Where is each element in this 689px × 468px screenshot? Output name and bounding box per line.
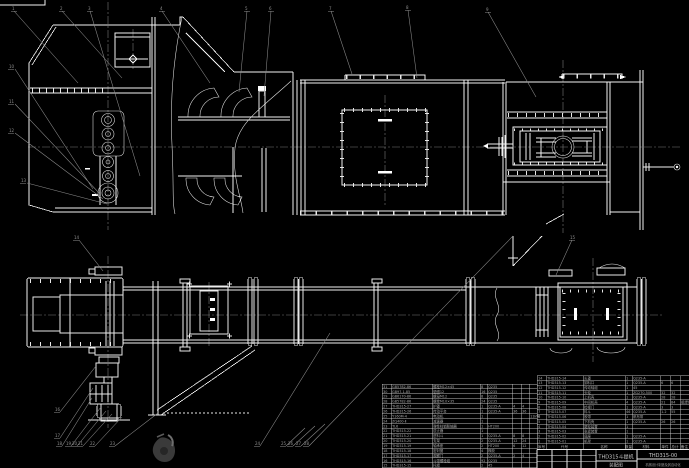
svg-text:THD315-03: THD315-03 [546,430,566,434]
svg-text:2: 2 [60,6,63,11]
svg-text:Q235: Q235 [488,385,497,389]
svg-text:1: 1 [538,439,540,443]
svg-text:4: 4 [538,425,540,429]
svg-text:THD315-13: THD315-13 [546,381,566,385]
svg-text:32: 32 [671,391,675,395]
svg-text:Q235-A: Q235-A [633,376,646,380]
svg-text:8: 8 [481,385,483,389]
svg-text:名称: 名称 [600,444,608,449]
svg-text:36: 36 [522,409,526,413]
svg-text:12: 12 [522,444,526,448]
bucket-profiles [186,88,252,205]
svg-text:4: 4 [160,6,163,11]
svg-text:15: 15 [570,235,576,240]
svg-text:帆布带: 帆布带 [633,414,644,419]
svg-text:Q235: Q235 [488,395,497,399]
svg-text:THD315-20: THD315-20 [391,439,411,443]
svg-text:机架: 机架 [584,438,591,443]
svg-text:ZQ400-Ⅱ: ZQ400-Ⅱ [392,419,407,423]
svg-text:5: 5 [538,420,540,424]
svg-text:检视门: 检视门 [584,404,595,409]
svg-text:Q235: Q235 [488,459,497,463]
svg-text:1: 1 [481,429,483,433]
svg-text:12: 12 [538,386,542,390]
svg-text:THD315-27: THD315-27 [391,405,411,409]
svg-text:1: 1 [626,439,628,443]
svg-text:胶带: 胶带 [584,414,591,419]
svg-text:Q235: Q235 [488,390,497,394]
drawing-title: THD315斗提机 [597,454,633,461]
svg-text:24: 24 [522,439,526,443]
svg-text:4: 4 [522,454,524,458]
svg-text:36: 36 [513,409,517,413]
svg-text:螺母M12: 螺母M12 [433,394,447,399]
svg-text:17: 17 [383,454,387,458]
svg-text:13: 13 [538,381,542,385]
svg-text:15: 15 [383,464,387,468]
svg-text:4: 4 [481,449,483,453]
svg-text:THD315-19: THD315-19 [391,444,411,448]
svg-text:THD315-01: THD315-01 [546,439,566,443]
svg-text:螺栓M12×45: 螺栓M12×45 [433,384,454,389]
svg-text:螺栓M10×35: 螺栓M10×35 [433,399,454,404]
svg-text:1: 1 [481,434,483,438]
svg-text:10: 10 [9,64,15,69]
callout-numbers: 1234567891011121314151617181920212223242… [8,5,576,446]
svg-text:GB97.1-85: GB97.1-85 [392,390,410,394]
svg-text:逆止器: 逆止器 [433,428,444,433]
svg-text:6: 6 [538,415,540,419]
svg-text:减速器: 减速器 [433,418,444,423]
top-view-linework [29,17,680,230]
svg-text:22: 22 [90,441,96,446]
svg-text:84: 84 [671,401,675,405]
svg-text:垫圈12: 垫圈12 [433,389,444,394]
svg-text:THD315-07: THD315-07 [546,410,566,414]
svg-text:46: 46 [626,410,630,414]
pulley-stack [93,111,124,203]
svg-text:55: 55 [671,410,675,414]
svg-text:3: 3 [88,6,91,11]
coupling [96,363,118,377]
svg-text:托辊: 托辊 [433,463,440,468]
svg-text:代号: 代号 [561,444,569,449]
svg-text:THD315-11: THD315-11 [546,391,566,395]
svg-text:弹性柱销联轴器: 弹性柱销联轴器 [433,423,457,428]
svg-text:1: 1 [626,381,628,385]
svg-text:2: 2 [481,439,483,443]
svg-text:30: 30 [383,390,387,394]
svg-text:THD315-26: THD315-26 [391,409,411,413]
svg-text:18: 18 [57,441,63,446]
door-handle [378,171,392,174]
svg-text:1: 1 [626,386,628,390]
svg-text:THD315-12: THD315-12 [546,386,566,390]
svg-text:21: 21 [661,401,665,405]
svg-text:GB5782-86: GB5782-86 [392,400,411,404]
svg-text:28: 28 [383,400,387,404]
svg-text:19: 19 [66,441,72,446]
drawing-org: 机械设计制造及其自动化 [645,462,681,467]
svg-text:THD315-04: THD315-04 [546,425,566,429]
svg-text:Y160M-4: Y160M-4 [392,414,407,418]
svg-text:THD315-08: THD315-08 [546,405,566,409]
cad-drawing-canvas[interactable]: 1234567891011121314151617181920212223242… [0,0,689,468]
svg-text:THD315-05: THD315-05 [546,420,566,424]
svg-text:备注: 备注 [681,444,689,449]
svg-text:THD315-09: THD315-09 [546,401,566,405]
svg-text:3: 3 [538,430,540,434]
door-handle [378,119,392,122]
svg-text:Q235-A: Q235-A [633,405,646,409]
svg-text:HT200: HT200 [488,444,499,448]
svg-text:尾轮装置: 尾轮装置 [584,424,598,429]
svg-text:1: 1 [626,396,628,400]
svg-text:25: 25 [281,441,287,446]
svg-text:1: 1 [481,409,483,413]
svg-text:12: 12 [9,128,15,133]
watermark-blob [153,434,175,462]
svg-text:4: 4 [513,405,515,409]
bolt-ticks [32,77,621,214]
svg-text:数量: 数量 [625,444,633,449]
svg-text:Q235-A: Q235-A [488,454,501,458]
svg-text:轴承座: 轴承座 [433,443,444,448]
svg-text:22: 22 [383,429,387,433]
svg-text:THD315-16: THD315-16 [391,459,411,463]
svg-text:Q235: Q235 [488,400,497,404]
svg-text:底座: 底座 [584,433,591,438]
svg-text:Q235-A: Q235-A [633,439,646,443]
svg-text:进料斗: 进料斗 [433,433,444,438]
svg-text:92: 92 [481,459,485,463]
svg-text:THD315-21: THD315-21 [391,434,411,438]
svg-text:17: 17 [55,433,61,438]
boot-flange-plate [560,287,623,337]
svg-text:HT200: HT200 [488,424,499,428]
svg-text:1: 1 [481,419,483,423]
svg-text:6: 6 [671,381,673,385]
bom-table-left: 31GB5782-86螺栓M12×458Q23530GB97.1-85垫圈121… [382,384,540,468]
svg-text:8: 8 [406,5,409,10]
svg-text:下机壳: 下机壳 [584,419,595,424]
svg-text:9: 9 [486,7,489,12]
svg-text:TL6: TL6 [391,424,398,428]
svg-text:16: 16 [55,407,61,412]
svg-text:头罩: 头罩 [584,375,591,380]
svg-text:THD315-22: THD315-22 [391,429,411,433]
svg-text:16: 16 [383,459,387,463]
svg-text:Q235-A: Q235-A [633,410,646,414]
svg-text:27: 27 [296,441,302,446]
svg-text:16: 16 [481,390,485,394]
svg-text:45: 45 [488,464,492,468]
svg-text:1: 1 [626,420,628,424]
svg-text:2: 2 [481,454,483,458]
svg-text:8: 8 [522,434,524,438]
bom-table-right: 14THD315-14头罩1Q235-A13THD315-13卸料口1Q235-… [537,375,689,449]
svg-text:24: 24 [255,441,261,446]
svg-text:19: 19 [383,444,387,448]
svg-text:28: 28 [671,396,675,400]
takeup-rod-arrow [483,144,488,149]
svg-text:GB6170-86: GB6170-86 [392,395,411,399]
title-block: THD315斗提机 装配图 THD315-00 机械设计制造及其自动化 [537,450,689,468]
svg-text:12: 12 [513,439,517,443]
drawing-subtitle: 装配图 [609,462,623,468]
svg-text:6: 6 [269,6,272,11]
svg-text:Q235-A: Q235-A [488,434,501,438]
svg-text:21: 21 [78,441,84,446]
svg-text:2: 2 [481,444,483,448]
svg-text:橡胶: 橡胶 [488,448,495,453]
bucket-elevator-assembly-drawing: 1234567891011121314151617181920212223242… [0,0,689,468]
svg-text:7: 7 [329,6,332,11]
svg-text:26: 26 [383,409,387,413]
svg-text:8: 8 [513,434,515,438]
svg-text:8: 8 [481,395,483,399]
svg-text:24: 24 [481,400,485,404]
svg-text:中间机壳: 中间机壳 [584,400,598,405]
svg-text:14: 14 [538,376,542,380]
svg-text:1: 1 [626,405,628,409]
svg-text:传动轴组: 传动轴组 [584,385,598,390]
svg-text:28: 28 [304,441,310,446]
svg-text:1.2: 1.2 [661,410,666,414]
svg-text:1: 1 [481,414,483,418]
svg-text:27: 27 [383,405,387,409]
svg-text:11: 11 [9,99,15,104]
svg-text:10: 10 [538,396,542,400]
svg-text:24: 24 [383,419,387,423]
svg-text:THD315-18: THD315-18 [391,449,411,453]
svg-text:1: 1 [626,415,628,419]
svg-text:密封圈: 密封圈 [433,448,444,453]
svg-text:8: 8 [538,405,540,409]
svg-text:护罩: 护罩 [433,404,440,409]
svg-text:THD315-15: THD315-15 [391,464,411,468]
svg-text:18: 18 [383,449,387,453]
svg-text:4: 4 [626,401,628,405]
frame-corner [0,0,45,5]
svg-text:斗带螺栓组: 斗带螺栓组 [433,458,451,463]
drawing-number: THD315-00 [648,453,677,459]
svg-text:3: 3 [661,405,663,409]
svg-text:序号: 序号 [538,444,546,449]
svg-text:头轮: 头轮 [584,390,591,395]
svg-text:THD315-17: THD315-17 [391,454,411,458]
svg-text:卸料口: 卸料口 [584,380,594,385]
svg-text:2: 2 [538,434,540,438]
svg-text:32: 32 [661,391,665,395]
svg-text:2: 2 [481,464,483,468]
svg-text:20: 20 [72,441,78,446]
svg-text:THD315-06: THD315-06 [546,415,566,419]
svg-text:29: 29 [383,395,387,399]
svg-text:THD315-14: THD315-14 [546,376,566,380]
svg-text:GB5782-86: GB5782-86 [392,385,411,389]
svg-text:1: 1 [626,376,628,380]
svg-text:Q235-A: Q235-A [488,405,501,409]
svg-text:26: 26 [671,420,675,424]
svg-text:6: 6 [513,444,515,448]
motor [97,404,121,418]
svg-text:1: 1 [481,405,483,409]
svg-text:20: 20 [383,439,387,443]
svg-text:21: 21 [383,434,387,438]
svg-text:13: 13 [21,178,27,183]
svg-text:观察门: 观察门 [433,453,444,458]
svg-text:2: 2 [513,454,515,458]
svg-text:料斗: 料斗 [584,409,591,414]
svg-text:材料: 材料 [642,444,650,449]
svg-text:4: 4 [522,405,524,409]
svg-text:1: 1 [626,434,628,438]
svg-text:组焊件: 组焊件 [681,400,689,405]
svg-text:9: 9 [538,401,540,405]
gear-reducer [90,383,112,404]
svg-text:6: 6 [661,381,663,385]
svg-text:传动平台: 传动平台 [433,408,447,413]
svg-text:1: 1 [626,430,628,434]
svg-text:上机壳: 上机壳 [584,395,595,400]
svg-text:Q235-A: Q235-A [633,434,646,438]
svg-text:支架: 支架 [433,438,440,443]
svg-text:1: 1 [481,424,483,428]
svg-text:Q235-A: Q235-A [633,401,646,405]
svg-text:11: 11 [538,391,542,395]
svg-text:7: 7 [538,410,540,414]
svg-text:Q235-A: Q235-A [633,396,646,400]
svg-text:14: 14 [74,235,80,240]
svg-text:单件: 单件 [661,444,669,449]
svg-text:1: 1 [626,391,628,395]
svg-text:26: 26 [288,441,294,446]
svg-text:Q235-A: Q235-A [488,409,501,413]
svg-text:25: 25 [383,414,387,418]
svg-text:28: 28 [661,396,665,400]
svg-text:26: 26 [661,420,665,424]
svg-text:Q235-A: Q235-A [633,420,646,424]
svg-text:5: 5 [245,6,248,11]
svg-text:THD315-02: THD315-02 [546,434,566,438]
svg-text:THD315-10: THD315-10 [546,396,566,400]
svg-text:1: 1 [626,425,628,429]
svg-text:总计: 总计 [671,444,679,449]
svg-text:3: 3 [671,405,673,409]
svg-text:23: 23 [110,441,116,446]
svg-text:45: 45 [633,386,637,390]
svg-text:ZG270-500: ZG270-500 [633,391,652,395]
svg-text:1: 1 [12,6,15,11]
svg-text:23: 23 [383,424,387,428]
svg-text:电动机: 电动机 [433,413,444,418]
svg-text:Q235-A: Q235-A [633,381,646,385]
svg-text:Q235-A: Q235-A [488,439,501,443]
svg-text:31: 31 [383,385,387,389]
svg-text:张紧装置: 张紧装置 [584,429,598,434]
